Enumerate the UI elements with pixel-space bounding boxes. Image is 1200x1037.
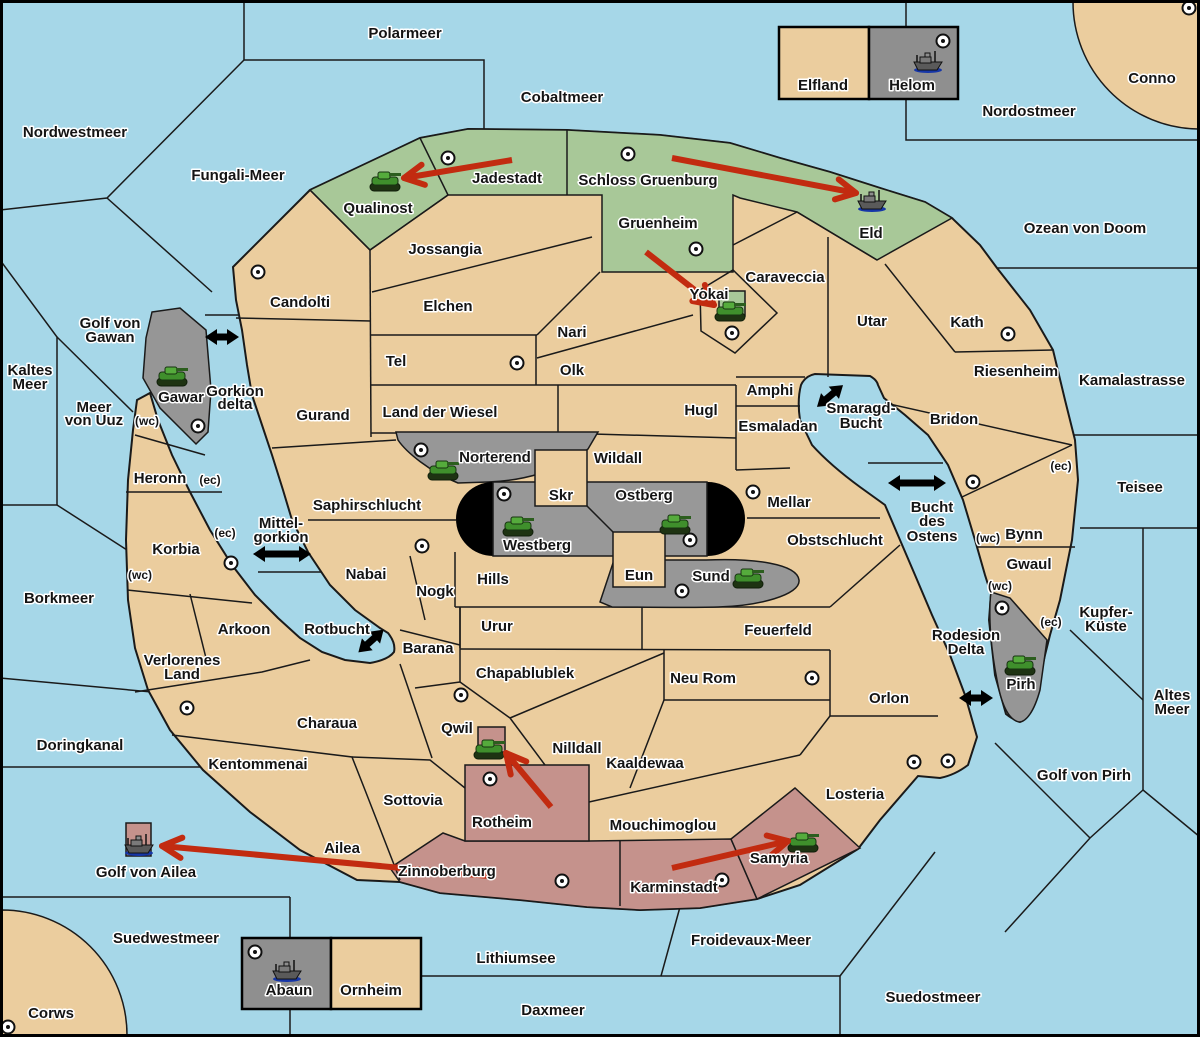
territory-label-westberg[interactable]: Westberg bbox=[503, 537, 571, 554]
territory-label-gawar[interactable]: Gawar bbox=[158, 389, 204, 406]
city-dot-icon bbox=[676, 585, 689, 598]
territory-label-charaua[interactable]: Charaua bbox=[297, 715, 358, 732]
sea-label-fungali-meer[interactable]: Fungali-Meer bbox=[191, 167, 285, 184]
territory-label-mouchimoglou[interactable]: Mouchimoglou bbox=[610, 817, 717, 834]
city-dot-icon bbox=[967, 476, 980, 489]
territory-label-schloss-gruenburg[interactable]: Schloss Gruenburg bbox=[578, 172, 717, 189]
territory-label-esmaladan[interactable]: Esmaladan bbox=[738, 418, 817, 435]
city-dot-icon bbox=[942, 755, 955, 768]
city-dot-icon bbox=[806, 672, 819, 685]
territory-label-nogk[interactable]: Nogk bbox=[416, 583, 454, 600]
territory-label-bridon[interactable]: Bridon bbox=[930, 411, 978, 428]
territory-label-gwaul[interactable]: Gwaul bbox=[1006, 556, 1051, 573]
territory-label-nilldall[interactable]: Nilldall bbox=[552, 740, 601, 757]
territory-label-qualinost[interactable]: Qualinost bbox=[343, 200, 412, 217]
sea-label-suedostmeer[interactable]: Suedostmeer bbox=[885, 989, 980, 1006]
city-dot-icon bbox=[442, 152, 455, 165]
territory-label-sottovia[interactable]: Sottovia bbox=[383, 792, 443, 809]
territory-label-wildall[interactable]: Wildall bbox=[594, 450, 642, 467]
territory-label-norterend[interactable]: Norterend bbox=[459, 449, 531, 466]
sea-label-golf-von-pirh[interactable]: Golf von Pirh bbox=[1037, 767, 1131, 784]
city-dot-icon bbox=[252, 266, 265, 279]
territory-label-gruenheim[interactable]: Gruenheim bbox=[618, 215, 697, 232]
sea-label-golf-von-ailea[interactable]: Golf von Ailea bbox=[96, 864, 197, 881]
territory-label-bynn[interactable]: Bynn bbox=[1005, 526, 1043, 543]
city-dot-icon bbox=[498, 488, 511, 501]
city-dot-icon bbox=[2, 1021, 15, 1034]
coast-marker-ec: (ec) bbox=[1050, 459, 1071, 473]
territory-label-qwil[interactable]: Qwil bbox=[441, 720, 473, 737]
coast-marker-wc: (wc) bbox=[976, 531, 1000, 545]
territory-label-riesenheim[interactable]: Riesenheim bbox=[974, 363, 1058, 380]
coast-marker-wc: (wc) bbox=[135, 414, 159, 428]
territory-label-caraveccia[interactable]: Caraveccia bbox=[745, 269, 825, 286]
territory-label-nabai[interactable]: Nabai bbox=[346, 566, 387, 583]
territory-label-zinnoberburg[interactable]: Zinnoberburg bbox=[398, 863, 496, 880]
sea-label-daxmeer[interactable]: Daxmeer bbox=[521, 1002, 585, 1019]
territory-label-heronn[interactable]: Heronn bbox=[134, 470, 187, 487]
territory-label-corws[interactable]: Corws bbox=[28, 1005, 74, 1022]
territory-label-karminstadt[interactable]: Karminstadt bbox=[630, 879, 718, 896]
territory-label-eld[interactable]: Eld bbox=[859, 225, 882, 242]
territory-label-land-der-wiesel[interactable]: Land der Wiesel bbox=[383, 404, 498, 421]
territory-label-ostberg[interactable]: Ostberg bbox=[615, 487, 673, 504]
territory-label-losteria[interactable]: Losteria bbox=[826, 786, 885, 803]
wargame-map: PolarmeerNordwestmeerFungali-MeerCobaltm… bbox=[0, 0, 1200, 1037]
territory-label-feuerfeld[interactable]: Feuerfeld bbox=[744, 622, 812, 639]
territory-label-hills[interactable]: Hills bbox=[477, 571, 509, 588]
sea-label-doringkanal[interactable]: Doringkanal bbox=[37, 737, 124, 754]
city-dot-icon bbox=[1002, 328, 1015, 341]
coast-marker-ec: (ec) bbox=[1040, 615, 1061, 629]
territory-label-kath[interactable]: Kath bbox=[950, 314, 983, 331]
game-map-stage: PolarmeerNordwestmeerFungali-MeerCobaltm… bbox=[0, 0, 1200, 1037]
sea-label-borkmeer[interactable]: Borkmeer bbox=[24, 590, 94, 607]
sea-label-kamalastrasse[interactable]: Kamalastrasse bbox=[1079, 372, 1185, 389]
territory-label-yokai[interactable]: Yokai bbox=[690, 286, 729, 303]
territory-label-gurand[interactable]: Gurand bbox=[296, 407, 349, 424]
territory-label-arkoon[interactable]: Arkoon bbox=[218, 621, 271, 638]
territory-label-urur[interactable]: Urur bbox=[481, 618, 513, 635]
sea-label-delta[interactable]: delta bbox=[217, 396, 253, 413]
city-dot-icon bbox=[747, 486, 760, 499]
territory-label-rotheim[interactable]: Rotheim bbox=[472, 814, 532, 831]
city-dot-icon bbox=[181, 702, 194, 715]
territory-label-orlon[interactable]: Orlon bbox=[869, 690, 909, 707]
sea-label-ostens[interactable]: Ostens bbox=[907, 528, 958, 545]
territory-label-samyria[interactable]: Samyria bbox=[750, 850, 809, 867]
territory-label-jossangia[interactable]: Jossangia bbox=[408, 241, 482, 258]
coast-marker-ec: (ec) bbox=[199, 473, 220, 487]
territory-label-jadestadt[interactable]: Jadestadt bbox=[472, 170, 542, 187]
sea-label-k-ste[interactable]: Küste bbox=[1085, 618, 1127, 635]
coast-marker-wc: (wc) bbox=[128, 568, 152, 582]
territory-label-helom[interactable]: Helom bbox=[889, 77, 935, 94]
sea-label-rotbucht[interactable]: Rotbucht bbox=[304, 621, 370, 638]
territory-label-hugl[interactable]: Hugl bbox=[684, 402, 717, 419]
territory-label-sund[interactable]: Sund bbox=[692, 568, 730, 585]
territory-label-saphirschlucht[interactable]: Saphirschlucht bbox=[313, 497, 421, 514]
city-dot-icon bbox=[511, 357, 524, 370]
city-dot-icon bbox=[225, 557, 238, 570]
sea-label-cobaltmeer[interactable]: Cobaltmeer bbox=[521, 89, 604, 106]
sea-label-froidevaux-meer[interactable]: Froidevaux-Meer bbox=[691, 932, 811, 949]
territory-label-nari[interactable]: Nari bbox=[557, 324, 586, 341]
territory-label-neu-rom[interactable]: Neu Rom bbox=[670, 670, 736, 687]
city-dot-icon bbox=[996, 602, 1009, 615]
coast-marker-wc: (wc) bbox=[988, 579, 1012, 593]
city-dot-icon bbox=[455, 689, 468, 702]
city-dot-icon bbox=[937, 35, 950, 48]
territory-label-tel[interactable]: Tel bbox=[386, 353, 407, 370]
territory-label-candolti[interactable]: Candolti bbox=[270, 294, 330, 311]
territory-label-olk[interactable]: Olk bbox=[560, 362, 585, 379]
territory-label-skr[interactable]: Skr bbox=[549, 487, 573, 504]
city-dot-icon bbox=[1183, 2, 1196, 15]
territory-label-obstschlucht[interactable]: Obstschlucht bbox=[787, 532, 883, 549]
city-dot-icon bbox=[416, 540, 429, 553]
sea-label-meer[interactable]: Meer bbox=[12, 376, 47, 393]
city-dot-icon bbox=[484, 773, 497, 786]
sea-label-polarmeer[interactable]: Polarmeer bbox=[368, 25, 442, 42]
sea-label-gawan[interactable]: Gawan bbox=[85, 329, 134, 346]
city-dot-icon bbox=[192, 420, 205, 433]
city-dot-icon bbox=[415, 444, 428, 457]
city-dot-icon bbox=[726, 327, 739, 340]
territory-label-kentommenai[interactable]: Kentommenai bbox=[208, 756, 307, 773]
territory-label-ailea[interactable]: Ailea bbox=[324, 840, 361, 857]
city-dot-icon bbox=[908, 756, 921, 769]
sea-label-ozean-von-doom[interactable]: Ozean von Doom bbox=[1024, 220, 1147, 237]
territory-label-ornheim[interactable]: Ornheim bbox=[340, 982, 402, 999]
sea-label-von-uuz[interactable]: von Uuz bbox=[65, 412, 123, 429]
sea-label-bucht[interactable]: Bucht bbox=[840, 415, 883, 432]
sea-label-gorkion[interactable]: gorkion bbox=[254, 529, 309, 546]
territory-label-korbia[interactable]: Korbia bbox=[152, 541, 200, 558]
territory-label-eun[interactable]: Eun bbox=[625, 567, 653, 584]
territory-label-pirh[interactable]: Pirh bbox=[1006, 676, 1035, 693]
territory-label-kaaldewaa[interactable]: Kaaldewaa bbox=[606, 755, 684, 772]
territory-label-utar[interactable]: Utar bbox=[857, 313, 887, 330]
sea-label-lithiumsee[interactable]: Lithiumsee bbox=[476, 950, 555, 967]
sea-label-nordostmeer[interactable]: Nordostmeer bbox=[982, 103, 1076, 120]
sea-label-meer[interactable]: Meer bbox=[1154, 701, 1189, 718]
city-dot-icon bbox=[556, 875, 569, 888]
sea-label-suedwestmeer[interactable]: Suedwestmeer bbox=[113, 930, 219, 947]
city-dot-icon bbox=[690, 243, 703, 256]
sea-label-nordwestmeer[interactable]: Nordwestmeer bbox=[23, 124, 127, 141]
territory-label-chapablublek[interactable]: Chapablublek bbox=[476, 665, 575, 682]
territory-label-abaun[interactable]: Abaun bbox=[266, 982, 313, 999]
city-dot-icon bbox=[684, 534, 697, 547]
coast-marker-ec: (ec) bbox=[214, 526, 235, 540]
territory-label-land[interactable]: Land bbox=[164, 666, 200, 683]
territory-label-conno[interactable]: Conno bbox=[1128, 70, 1175, 87]
territory-label-barana[interactable]: Barana bbox=[403, 640, 455, 657]
city-dot-icon bbox=[249, 946, 262, 959]
territory-label-elchen[interactable]: Elchen bbox=[423, 298, 472, 315]
territory-label-amphi[interactable]: Amphi bbox=[747, 382, 794, 399]
city-dot-icon bbox=[622, 148, 635, 161]
territory-label-mellar[interactable]: Mellar bbox=[767, 494, 811, 511]
sea-label-teisee[interactable]: Teisee bbox=[1117, 479, 1163, 496]
territory-label-elfland[interactable]: Elfland bbox=[798, 77, 848, 94]
sea-label-delta[interactable]: Delta bbox=[948, 641, 985, 658]
